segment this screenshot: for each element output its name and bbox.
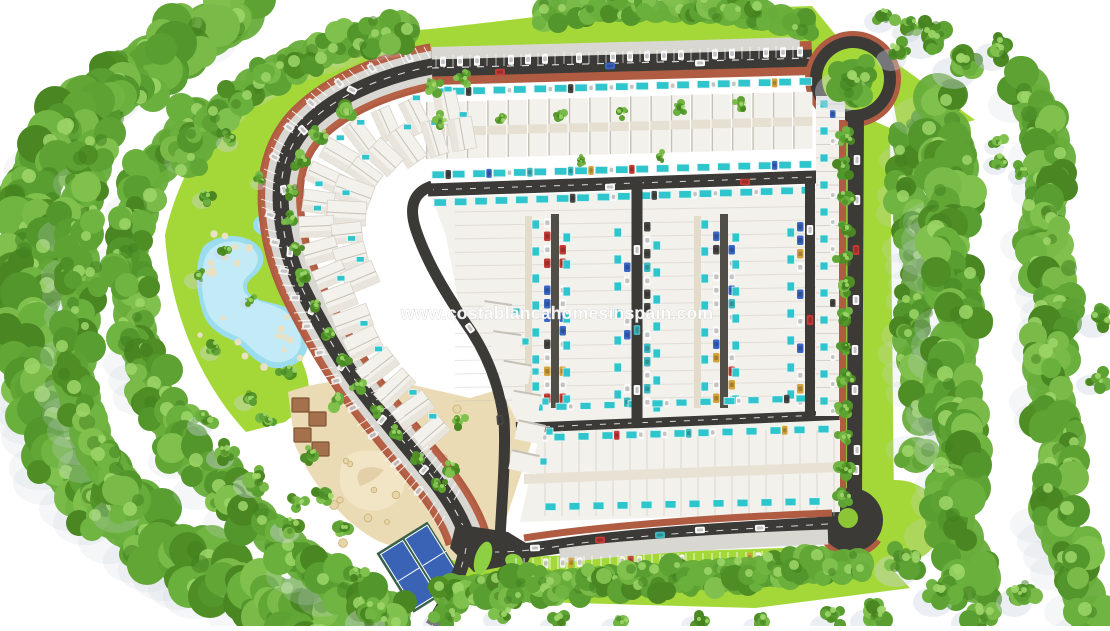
- svg-text:www.costablancahomesinspain.co: www.costablancahomesinspain.com: [400, 303, 714, 323]
